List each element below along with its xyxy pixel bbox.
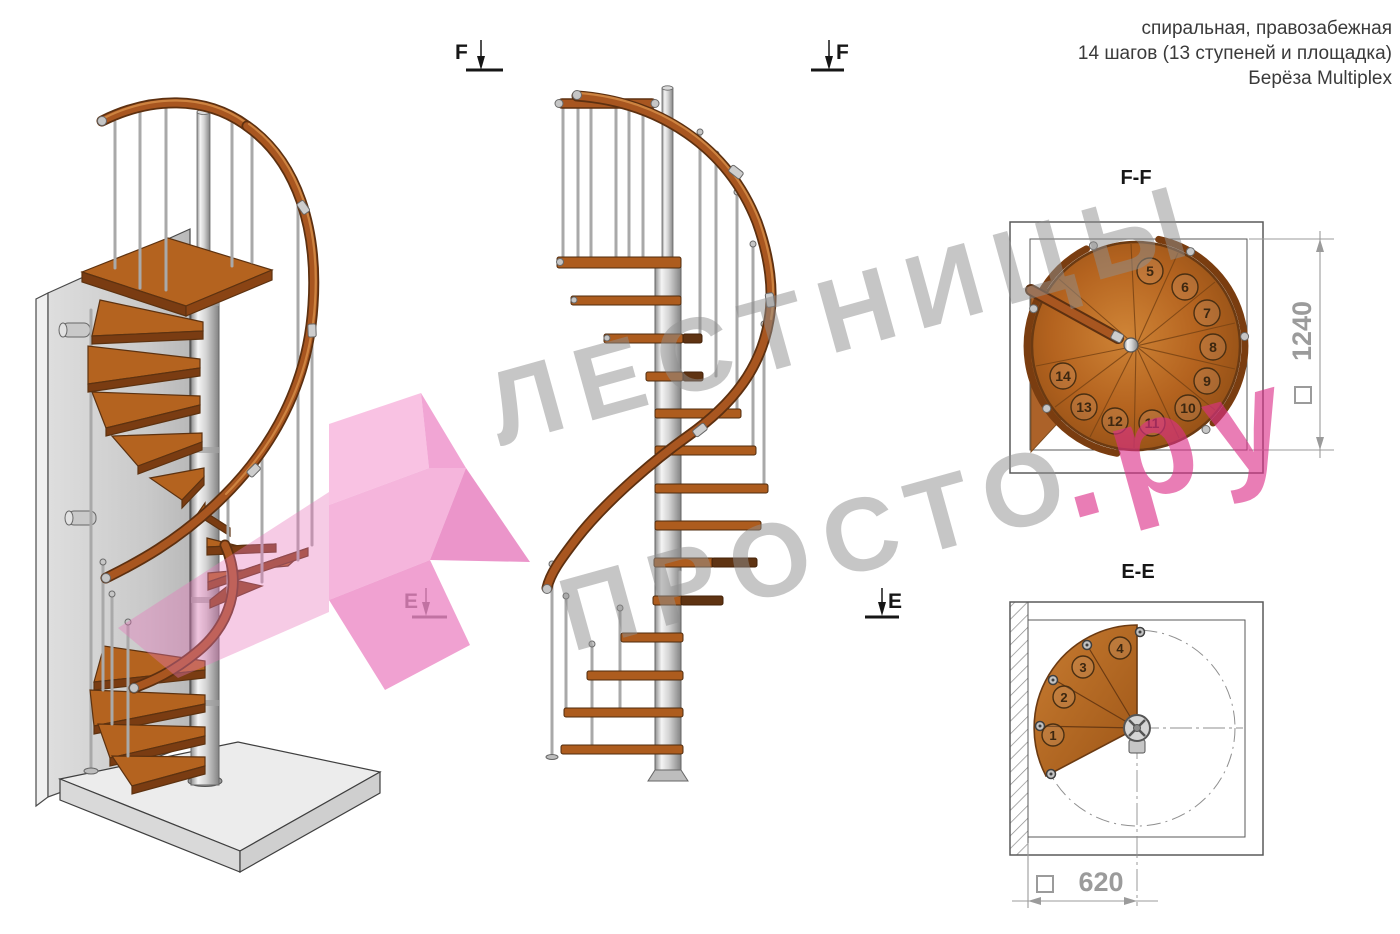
arrow-down-icon bbox=[477, 56, 485, 70]
square-symbol bbox=[1295, 387, 1311, 403]
step-number: 4 bbox=[1116, 641, 1124, 656]
marker-letter: E bbox=[888, 590, 902, 613]
title-line-2: 14 шагов (13 ступеней и площадка) bbox=[1078, 43, 1392, 64]
wall-hatch bbox=[1010, 602, 1028, 855]
ee-dimension: 620 bbox=[1012, 843, 1158, 908]
square-symbol bbox=[1037, 876, 1053, 892]
step-number: 3 bbox=[1079, 660, 1086, 675]
marker-letter: F bbox=[455, 41, 468, 64]
ee-plan-view: E-E 1 2 bbox=[1010, 561, 1263, 908]
step-number: 1 bbox=[1049, 728, 1056, 743]
ff-dimension-value: 1240 bbox=[1287, 301, 1317, 361]
arrow-down-icon bbox=[825, 56, 833, 70]
ee-label: E-E bbox=[1121, 561, 1154, 583]
step-number: 2 bbox=[1060, 690, 1067, 705]
title-line-3: Берёза Multiplex bbox=[1248, 68, 1392, 89]
step-number: 14 bbox=[1055, 368, 1071, 384]
technical-drawing: спиральная, правозабежная 14 шагов (13 с… bbox=[0, 0, 1400, 934]
landing-step bbox=[557, 257, 681, 268]
step-number: 7 bbox=[1203, 305, 1211, 321]
title-block: спиральная, правозабежная 14 шагов (13 с… bbox=[1078, 18, 1393, 89]
section-marker-f-left: F bbox=[455, 40, 503, 70]
iso-view bbox=[36, 100, 380, 872]
title-line-1: спиральная, правозабежная bbox=[1142, 18, 1392, 39]
step-number: 6 bbox=[1181, 279, 1189, 295]
arrow-down-icon bbox=[878, 602, 886, 616]
wall-edge bbox=[36, 293, 48, 806]
pole-hub bbox=[1124, 715, 1150, 753]
section-marker-f-right: F bbox=[811, 40, 849, 70]
pole-base bbox=[648, 770, 688, 781]
ee-dimension-value: 620 bbox=[1078, 867, 1123, 897]
rail-ball-end bbox=[1124, 338, 1138, 352]
marker-letter: F bbox=[836, 41, 849, 64]
